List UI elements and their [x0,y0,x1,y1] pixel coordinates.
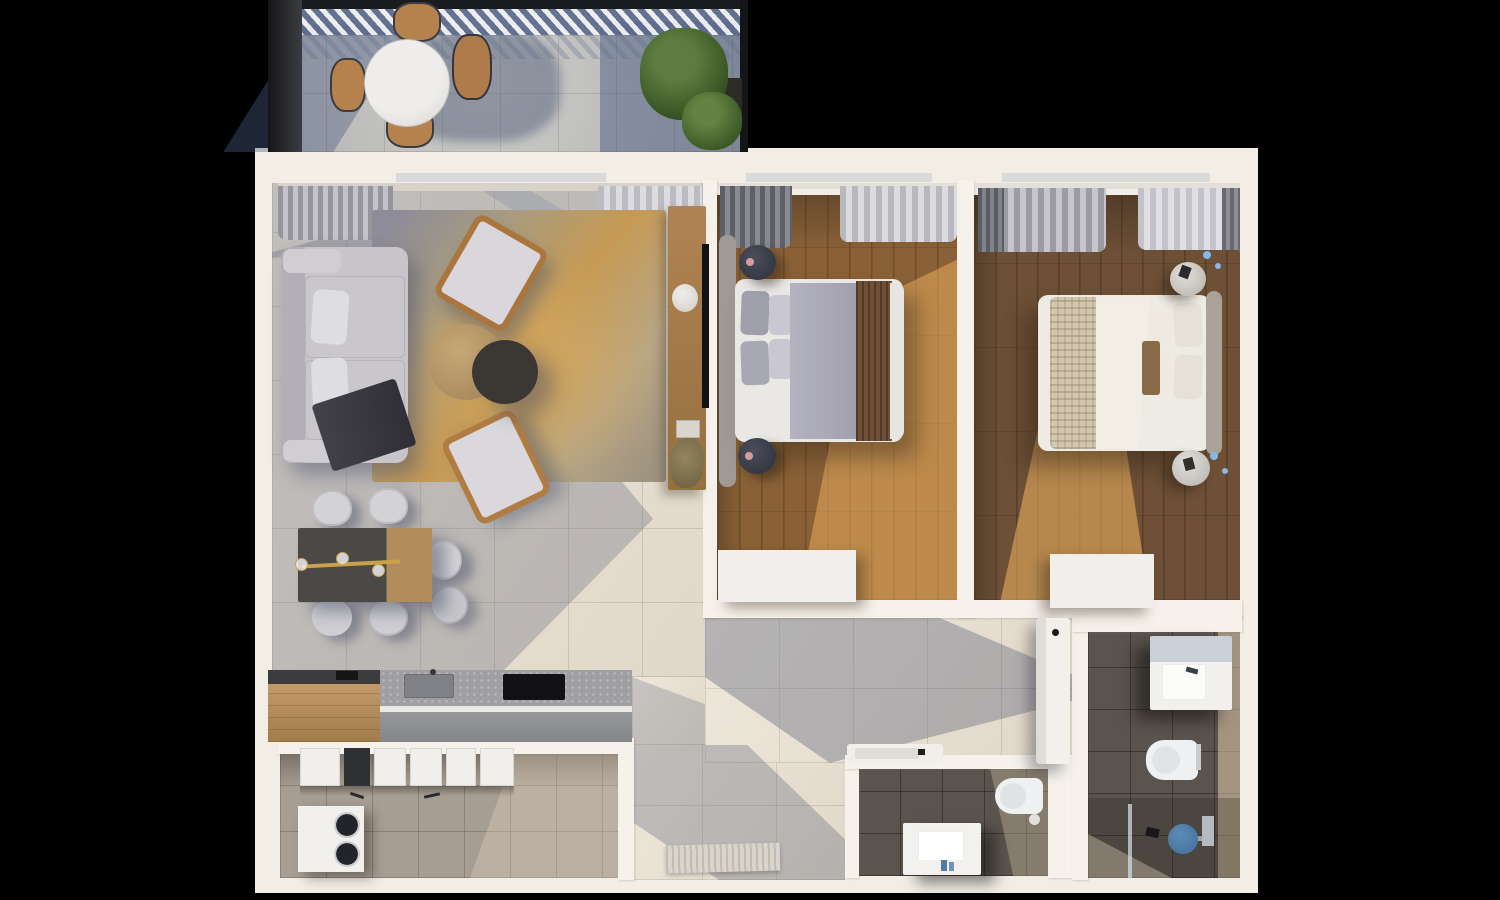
washer-door [334,812,360,838]
cabinet-3 [410,748,442,786]
pergola-beam [268,0,748,9]
shrub-small [682,92,742,150]
cabinet-2 [374,748,406,786]
bed1-duvet [790,283,858,439]
bathtub-faucet [918,749,925,755]
island-dark-top [268,670,380,684]
sofa-backrest [281,247,305,463]
sink-faucet [430,669,436,675]
floor-plan-render [0,0,1500,900]
toilet-paper-roll [1029,814,1040,825]
bed1-pillow-2 [740,341,770,386]
decor-blue-dot-4 [1222,468,1228,474]
vanity-bottle-2 [949,862,954,871]
bed2-pillow-1 [1172,302,1203,348]
vanity-bottle-1 [941,860,947,871]
bed1-pillow-1 [740,291,770,336]
bed2-pillow-2 [1173,354,1203,399]
pendant-globe-2 [336,552,349,565]
island-wood-front [268,684,380,742]
wall-kitchen-right [618,738,634,880]
bed2-tray [1142,341,1160,395]
bed2-headboard [1206,291,1222,455]
bathroom1-toilet-seat [1152,746,1180,774]
hall-bathtub-niche [1036,618,1070,764]
coffee-table-dark [472,340,538,404]
cooktop [503,674,565,700]
bed1-foot-edge [890,283,904,439]
cabinet-4 [446,748,476,786]
dining-chair-1 [312,490,352,526]
decor-blue-dot-3 [1210,452,1218,460]
hallway-floor [705,615,1072,763]
shower-glass-screen [1128,804,1132,878]
nightstand-decor-pink-2 [745,452,753,460]
sofa-pillow-1 [310,289,350,345]
wall-bedroom1-bedroom2 [957,180,974,618]
bathroom2-sink [918,831,964,861]
dining-chair-4 [368,600,408,636]
nightstand-decor-pink-1 [746,258,754,266]
wall-bathroom2-left [845,755,859,878]
round-marble-table [364,39,450,127]
bathroom1-sink [1162,664,1206,700]
shower-hardware [1202,816,1214,846]
bedroom2-window [1002,173,1210,182]
wall-bathroom2-right [1048,755,1072,878]
cabinet-dark [344,748,370,786]
bed1-nightstand-top [739,245,776,280]
dining-chair-6 [430,586,468,624]
bed1-headboard [719,235,736,487]
bed2-knit-throw [1050,297,1098,449]
dryer-door [334,841,360,867]
bedroom1-window [746,173,932,182]
bed1-nightstand-bottom [738,438,776,474]
pendant-globe-3 [372,564,385,577]
bedroom2-curtain-left-dark [978,188,1004,252]
niche-tub-faucet [1052,629,1059,636]
cabinet-5 [480,748,514,786]
bedroom1-curtain-right [840,186,957,242]
bathtub-basin [855,748,919,759]
wall-tv [702,244,709,408]
terrace-left-frame [268,0,302,152]
bedroom2-dresser [1050,554,1154,608]
dining-chair-2 [368,488,408,524]
console-decor [676,420,700,438]
decor-blue-dot-2 [1215,263,1221,269]
bed1-runner [856,281,892,441]
wall-bathroom1-left [1072,615,1088,880]
outdoor-chair-east [452,34,492,100]
console-vase [672,284,698,312]
kitchen-sink [404,674,454,698]
pendant-globe-1 [295,558,308,571]
shower-head [1168,824,1198,854]
bedroom2-curtain-right-dark [1222,188,1240,250]
decor-blue-dot-1 [1203,251,1211,259]
dining-chair-3 [312,600,352,636]
counter-front [380,712,632,742]
outdoor-chair-west [330,58,366,112]
entry-doormat [666,843,781,874]
outdoor-chair-north [393,2,441,42]
console-plant [670,438,704,488]
sofa-armrest-top [283,249,341,273]
wall-bathroom1-top [1072,615,1242,632]
bathroom2-toilet-seat [1000,783,1026,809]
bedroom1-dresser [718,550,856,602]
toilet-flush-plate [1196,744,1201,770]
living-window [396,173,606,182]
living-floor-extension [632,677,705,745]
cabinet-1 [300,748,340,786]
island-appliance [336,671,358,680]
